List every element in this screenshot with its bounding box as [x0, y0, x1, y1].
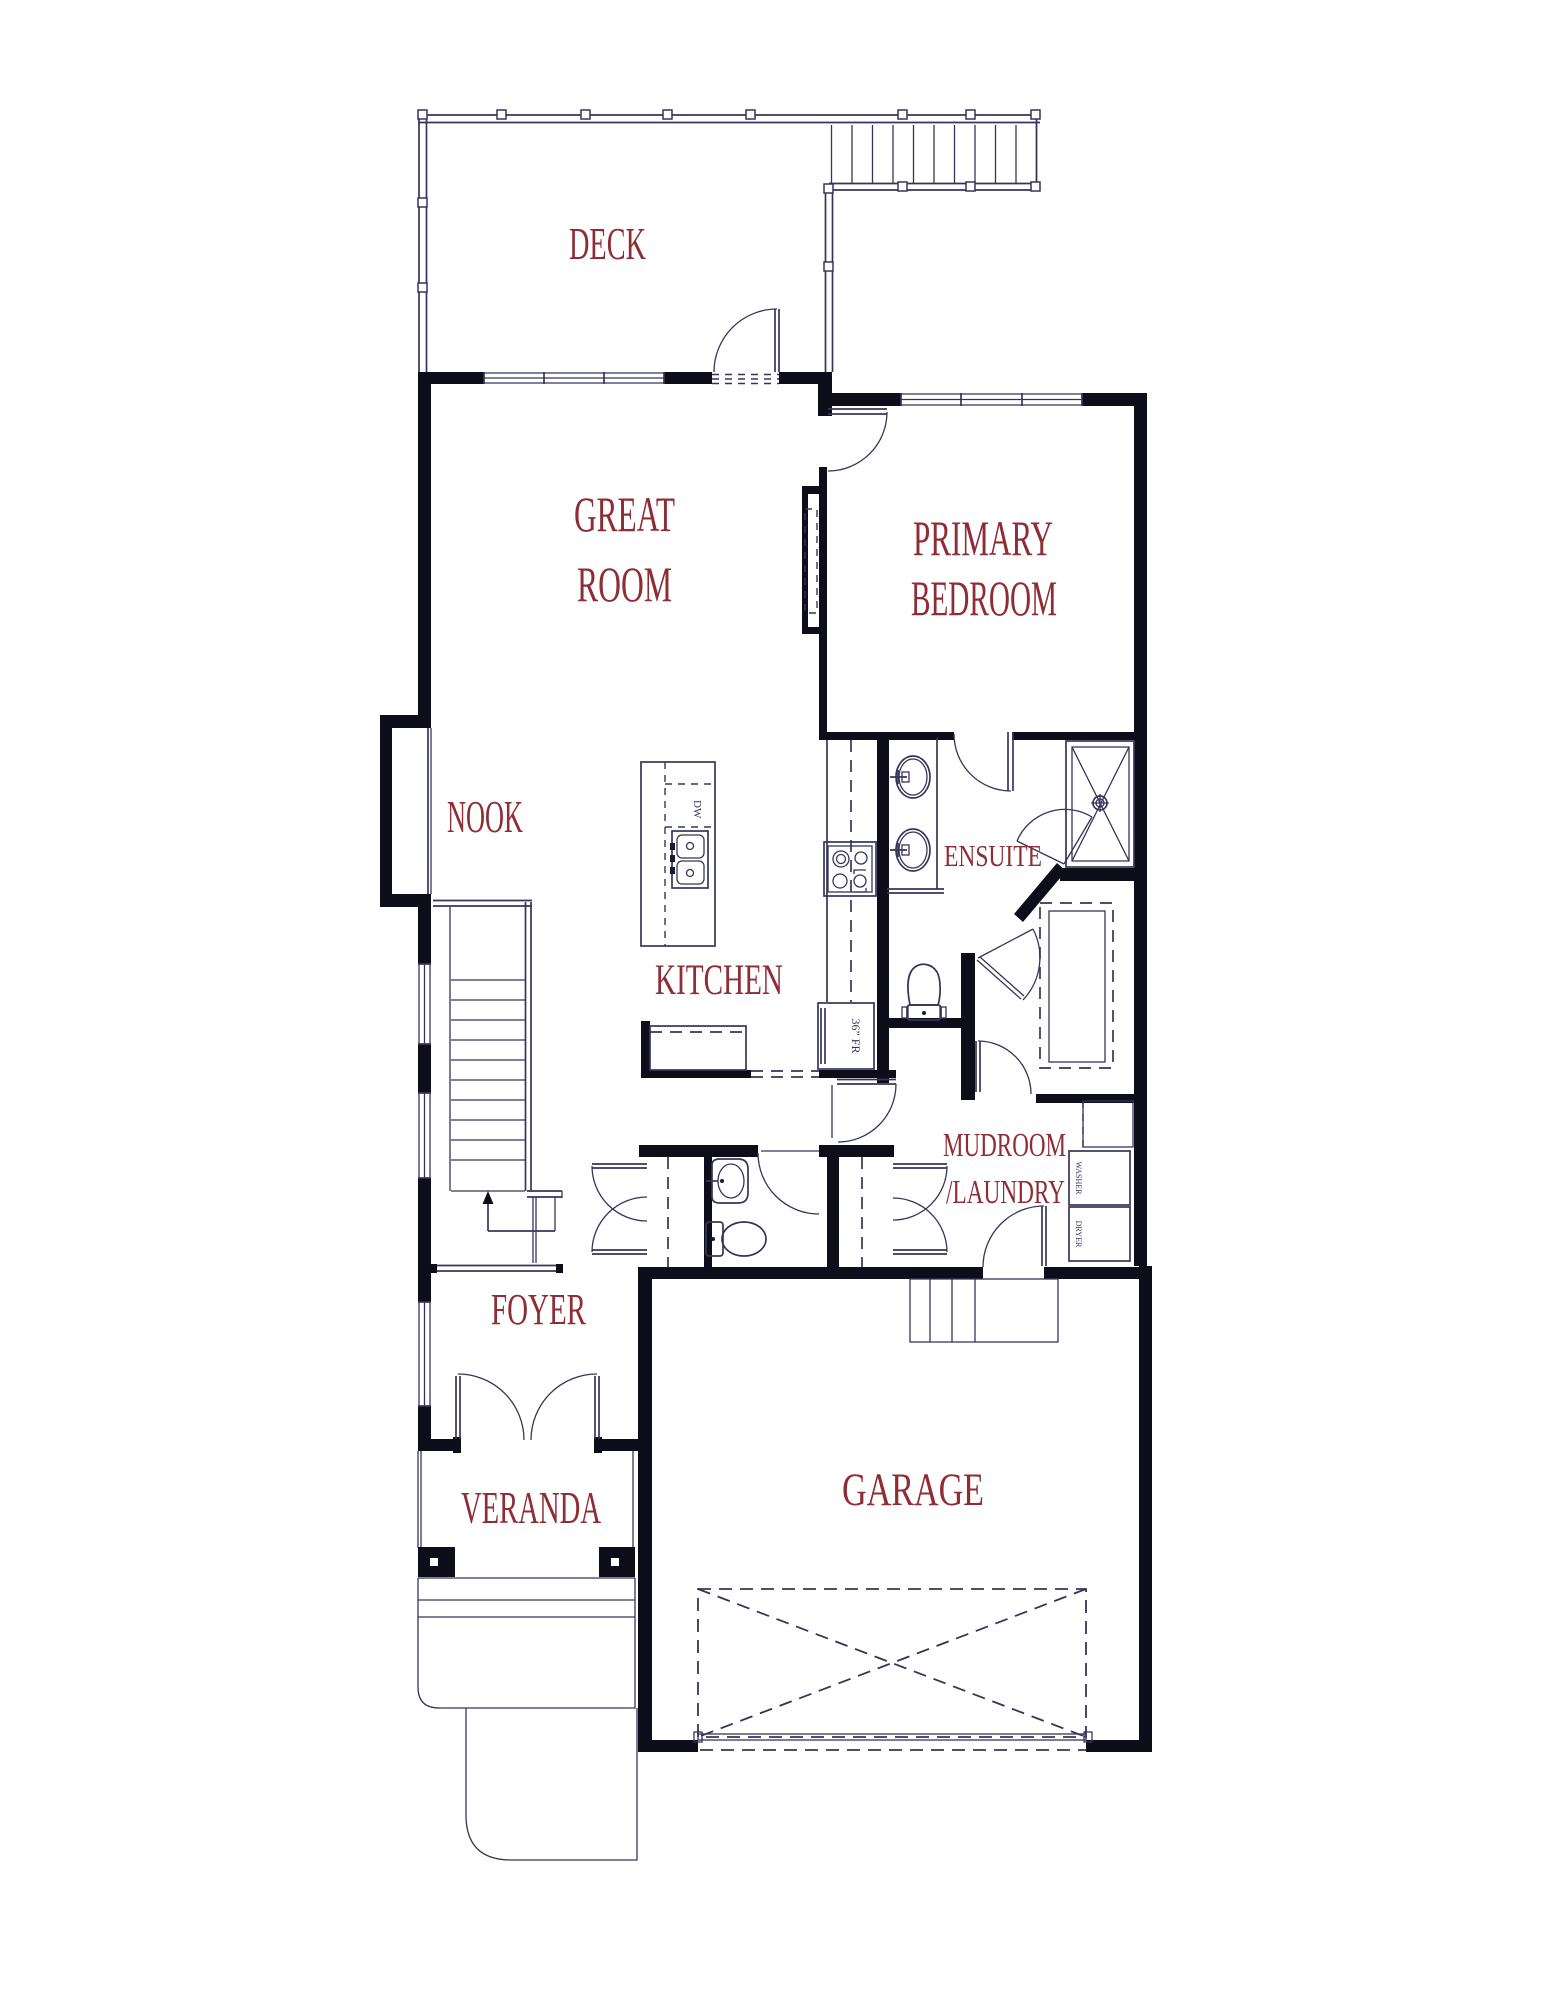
svg-text:MUDROOM: MUDROOM [943, 1127, 1066, 1164]
svg-text:GARAGE: GARAGE [842, 1464, 984, 1516]
svg-text:NOOK: NOOK [447, 791, 523, 842]
svg-text:DECK: DECK [569, 218, 646, 269]
svg-text:/LAUNDRY: /LAUNDRY [946, 1174, 1065, 1211]
svg-text:ENSUITE: ENSUITE [944, 838, 1042, 873]
svg-text:36” FR: 36” FR [849, 1018, 863, 1053]
svg-text:BEDROOM: BEDROOM [911, 570, 1057, 626]
svg-text:GREAT: GREAT [574, 486, 675, 542]
svg-text:VERANDA: VERANDA [461, 1482, 601, 1533]
svg-text:ROOM: ROOM [577, 556, 672, 612]
svg-text:KITCHEN: KITCHEN [655, 957, 783, 1004]
svg-text:FOYER: FOYER [491, 1285, 586, 1334]
svg-text:PRIMARY: PRIMARY [913, 510, 1053, 566]
svg-text:WASHER: WASHER [1074, 1162, 1083, 1196]
svg-text:DW: DW [691, 800, 703, 819]
svg-text:DRYER: DRYER [1074, 1221, 1083, 1248]
